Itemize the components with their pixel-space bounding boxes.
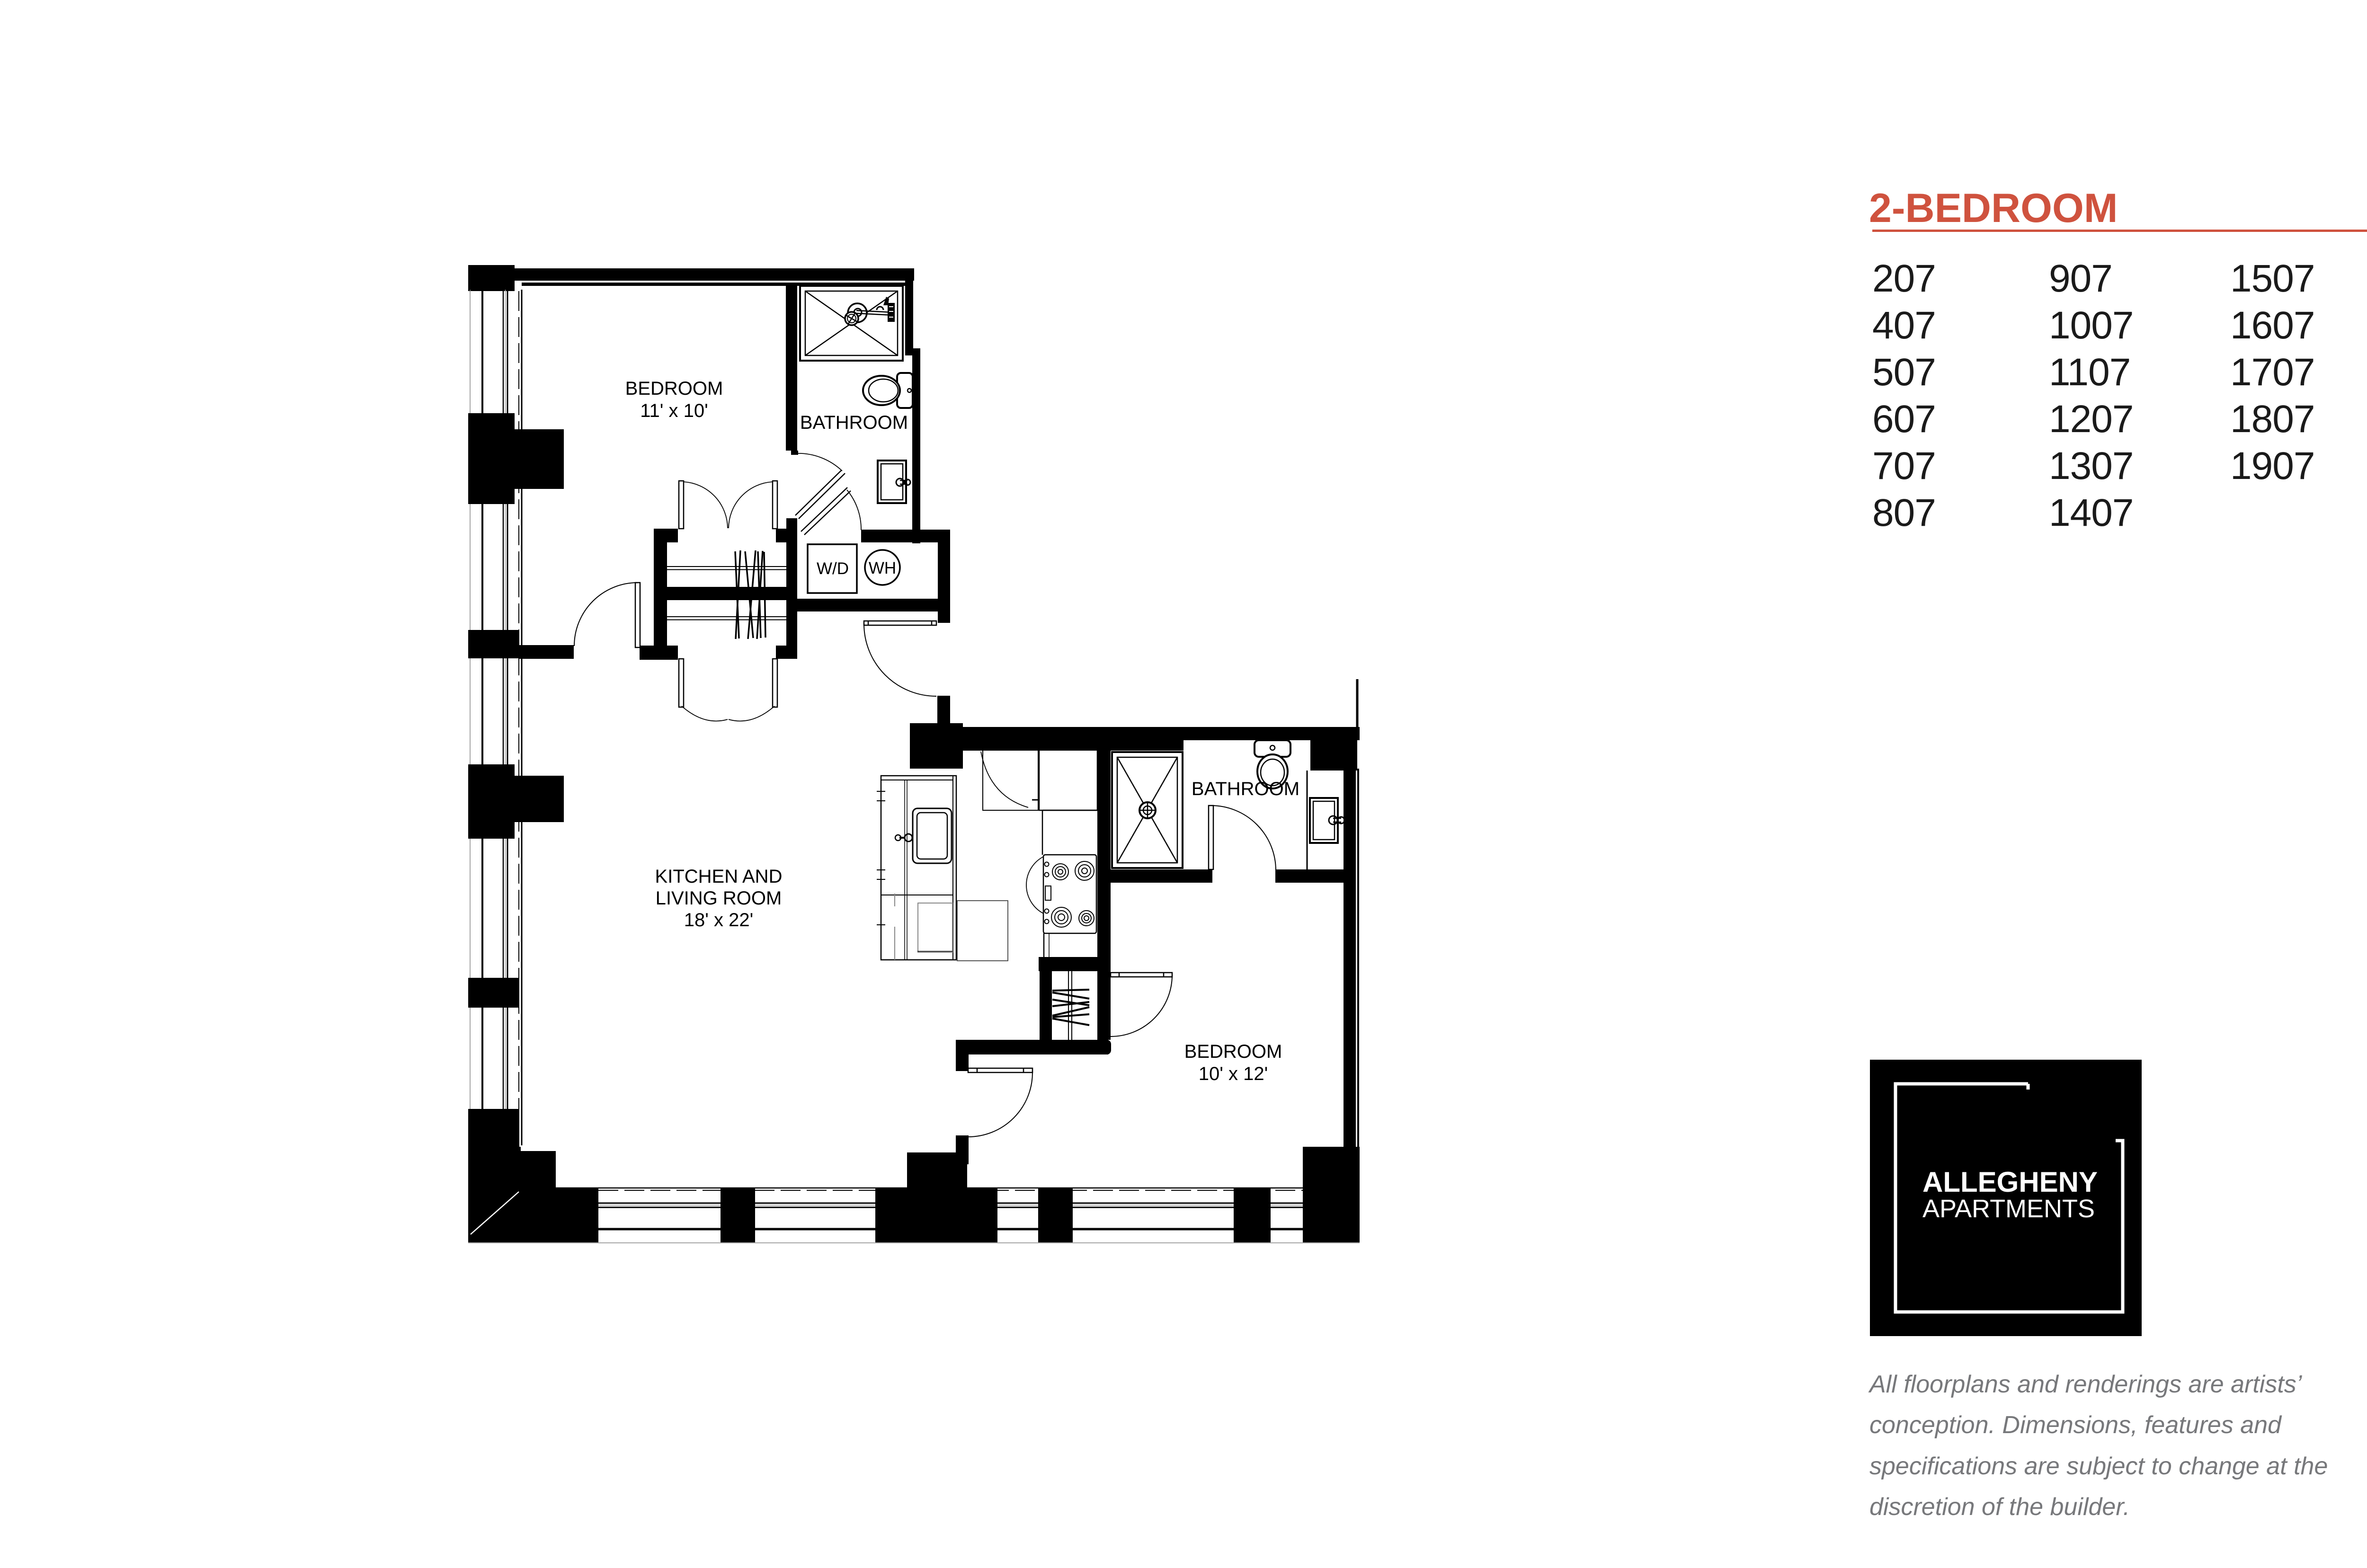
- svg-text:BEDROOM: BEDROOM: [625, 378, 723, 399]
- svg-text:BEDROOM: BEDROOM: [1184, 1041, 1282, 1062]
- svg-text:11' x 10': 11' x 10': [640, 400, 708, 421]
- svg-text:WH: WH: [869, 559, 896, 577]
- svg-text:BATHROOM: BATHROOM: [800, 412, 908, 433]
- svg-text:LIVING ROOM: LIVING ROOM: [656, 888, 782, 909]
- svg-text:18' x 22': 18' x 22': [684, 910, 753, 930]
- svg-text:BATHROOM: BATHROOM: [1192, 779, 1299, 799]
- svg-text:10' x 12': 10' x 12': [1199, 1063, 1268, 1084]
- svg-text:KITCHEN AND: KITCHEN AND: [655, 866, 783, 887]
- svg-text:W/D: W/D: [817, 559, 849, 578]
